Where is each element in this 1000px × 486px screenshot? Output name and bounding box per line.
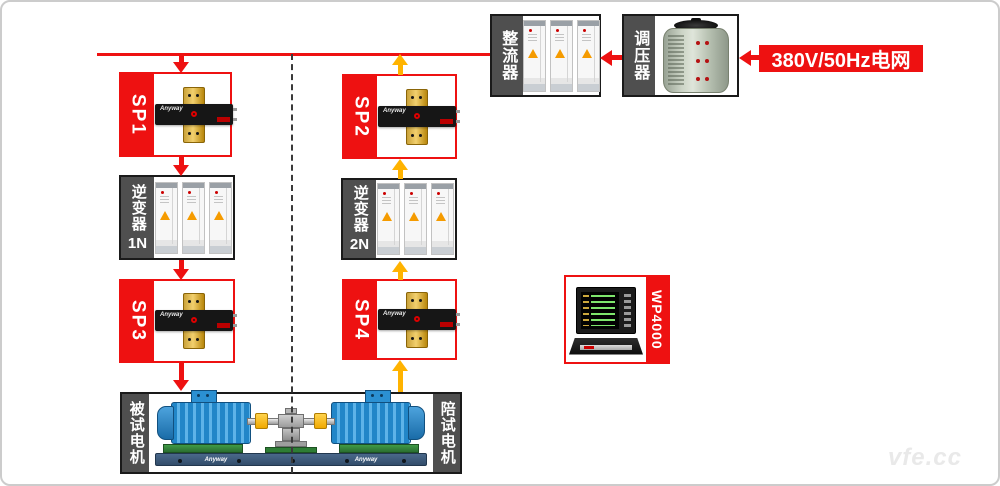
brand-text: Anyway <box>205 457 228 463</box>
voltage-regulator-graphic <box>660 18 732 94</box>
watermark-text: vfe.cc <box>888 444 962 472</box>
power-sensor-graphic: Anyway <box>154 292 234 350</box>
rectifier-box: 整流器 <box>490 14 601 97</box>
sp4-sensor-box: SP4 Anyway <box>342 279 457 360</box>
motor-left-label-strip: 被试电机 <box>122 394 149 472</box>
power-sensor-graphic: Anyway <box>154 86 234 144</box>
motor-right-label: 陪试电机 <box>438 401 455 465</box>
sp2-content: Anyway <box>377 76 457 157</box>
sensor-body-graphic: Anyway <box>155 310 233 331</box>
motor-left-label: 被试电机 <box>127 401 144 465</box>
power-sensor-graphic: Anyway <box>377 291 457 349</box>
inverter2-label-strip: 逆变器 2N <box>343 180 376 258</box>
power-sensor-graphic: Anyway <box>377 88 457 146</box>
mount-plate-graphic <box>339 444 419 453</box>
regulator-label-strip: 调压器 <box>624 16 655 95</box>
brand-text: Anyway <box>160 312 183 318</box>
arrowhead-sp1-to-inverter1 <box>173 165 189 176</box>
rectifier-content <box>523 16 600 95</box>
sp3-content: Anyway <box>154 281 234 361</box>
sp1-label-strip: SP1 <box>121 74 154 155</box>
sp4-label: SP4 <box>350 299 372 341</box>
cabinet-graphic <box>155 182 178 254</box>
arrow-grid-to-regulator <box>750 55 759 60</box>
inverter2-label: 逆变器 <box>351 185 368 233</box>
inverter1-label: 逆变器 <box>129 184 146 232</box>
arrow-inverter2-to-sp2 <box>398 169 403 179</box>
sensor-body-graphic: Anyway <box>378 309 456 330</box>
sp3-label-strip: SP3 <box>121 281 154 361</box>
analyzer-label-strip: WP4000 <box>646 277 668 362</box>
regulator-box: 调压器 <box>622 14 739 97</box>
arrowhead-inverter1-to-sp3 <box>173 269 189 280</box>
brand-text: Anyway <box>383 311 406 317</box>
motor-under-test-graphic <box>157 398 253 444</box>
divider-dashed-line <box>291 54 293 473</box>
grid-source-label: 380V/50Hz电网 <box>759 45 923 72</box>
brand-text: Anyway <box>383 108 406 114</box>
analyzer-box: WP4000 <box>564 275 670 364</box>
regulator-content <box>655 16 737 95</box>
cabinet-graphic <box>523 20 546 92</box>
inverter1-box: 逆变器 1N <box>119 175 235 260</box>
diagram-canvas: SP1 Anyway SP2 Anyway <box>0 0 1000 486</box>
sp1-content: Anyway <box>154 74 234 155</box>
arrow-sp4-to-inverter2 <box>398 271 403 280</box>
motor-right-label-strip: 陪试电机 <box>433 394 460 472</box>
arrow-motor-to-sp4 <box>398 370 403 392</box>
cabinet-row-graphic <box>377 183 454 255</box>
load-motor-graphic <box>329 398 425 444</box>
regulator-label: 调压器 <box>631 30 649 81</box>
arrow-regulator-to-rectifier <box>611 55 622 60</box>
cabinet-graphic <box>431 183 454 255</box>
sensor-body-graphic: Anyway <box>155 104 233 125</box>
coupling-graphic <box>255 413 268 429</box>
rectifier-label-strip: 整流器 <box>492 16 523 95</box>
brand-text: Anyway <box>355 457 378 463</box>
cabinet-row-graphic <box>523 20 600 92</box>
cabinet-graphic <box>577 20 600 92</box>
sp3-label: SP3 <box>127 300 149 342</box>
arrowhead-bus-to-sp1 <box>173 62 189 73</box>
cabinet-graphic <box>182 182 205 254</box>
cabinet-row-graphic <box>155 182 232 254</box>
sp2-sensor-box: SP2 Anyway <box>342 74 457 159</box>
analyzer-label: WP4000 <box>649 290 665 350</box>
arrow-sp2-to-bus <box>398 64 403 75</box>
inverter1-sub: 1N <box>128 235 147 252</box>
cabinet-graphic <box>404 183 427 255</box>
brand-text: Anyway <box>160 106 183 112</box>
arrowhead-sp3-to-motor <box>173 380 189 391</box>
sp4-content: Anyway <box>377 281 457 358</box>
sp2-label-strip: SP2 <box>344 76 377 157</box>
cabinet-graphic <box>550 20 573 92</box>
sp3-sensor-box: SP3 Anyway <box>119 279 235 363</box>
inverter1-content <box>154 177 233 258</box>
cabinet-graphic <box>377 183 400 255</box>
sp1-label: SP1 <box>127 94 149 136</box>
analyzer-content <box>566 277 646 362</box>
sensor-body-graphic: Anyway <box>378 106 456 127</box>
sp1-sensor-box: SP1 Anyway <box>119 72 232 157</box>
rectifier-label: 整流器 <box>499 30 517 81</box>
inverter2-box: 逆变器 2N <box>341 178 457 260</box>
inverter2-sub: 2N <box>350 236 369 253</box>
inverter2-content <box>376 180 455 258</box>
inverter1-label-strip: 逆变器 1N <box>121 177 154 258</box>
dc-bus-line <box>97 53 492 56</box>
sp2-label: SP2 <box>350 96 372 138</box>
cabinet-graphic <box>209 182 232 254</box>
sp4-label-strip: SP4 <box>344 281 377 358</box>
coupling-graphic <box>314 413 327 429</box>
power-analyzer-graphic <box>569 285 643 355</box>
mount-plate-graphic <box>163 444 243 453</box>
